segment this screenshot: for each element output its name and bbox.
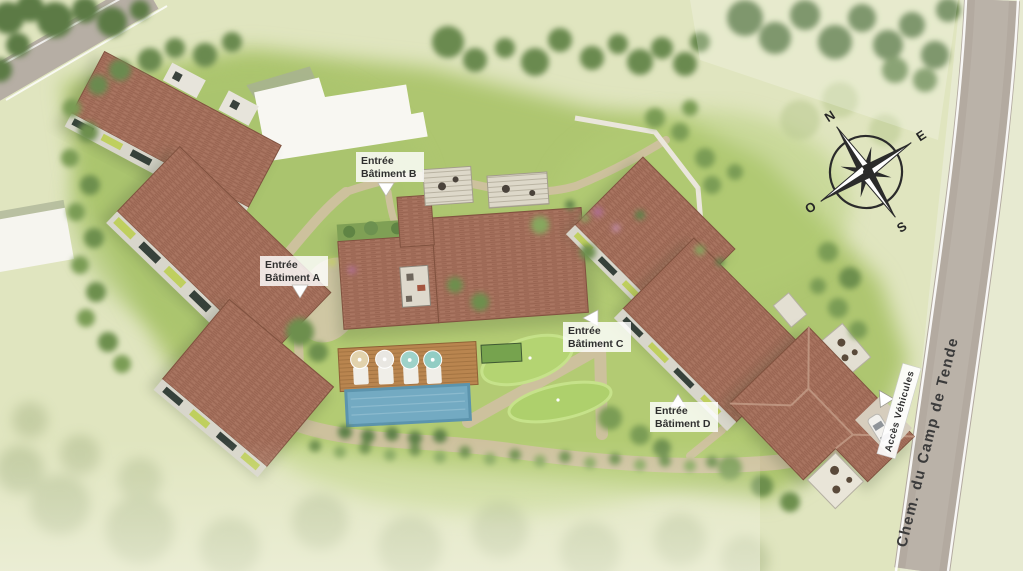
entrance-a-line2: Bâtiment A (265, 272, 320, 284)
svg-text:Bâtiment B: Bâtiment B (361, 168, 417, 180)
inner-courtyard (400, 265, 431, 307)
svg-text:Entrée: Entrée (655, 405, 688, 417)
svg-text:Entrée: Entrée (265, 259, 298, 271)
entrance-d-line2: Bâtiment D (655, 418, 711, 430)
entrance-d-line1: Entrée (655, 405, 688, 417)
entrance-a-line1: Entrée (265, 259, 298, 271)
entrance-b-line2: Bâtiment B (361, 168, 417, 180)
site-plan: N E S O Entrée Bâtiment B Entrée Bâtimen… (0, 0, 1023, 571)
svg-text:Bâtiment A: Bâtiment A (265, 272, 320, 284)
lawn-patch (481, 343, 522, 363)
bottom-fade (0, 440, 760, 571)
svg-text:Bâtiment C: Bâtiment C (568, 338, 624, 350)
entrance-c-line1: Entrée (568, 325, 601, 337)
svg-text:Entrée: Entrée (568, 325, 601, 337)
swimming-pool (347, 386, 469, 424)
entrance-c-line2: Bâtiment C (568, 338, 624, 350)
svg-text:Bâtiment D: Bâtiment D (655, 418, 711, 430)
entrance-b-line1: Entrée (361, 155, 394, 167)
site-plan-canvas: N E S O Entrée Bâtiment B Entrée Bâtimen… (0, 0, 1023, 571)
svg-text:Entrée: Entrée (361, 155, 394, 167)
